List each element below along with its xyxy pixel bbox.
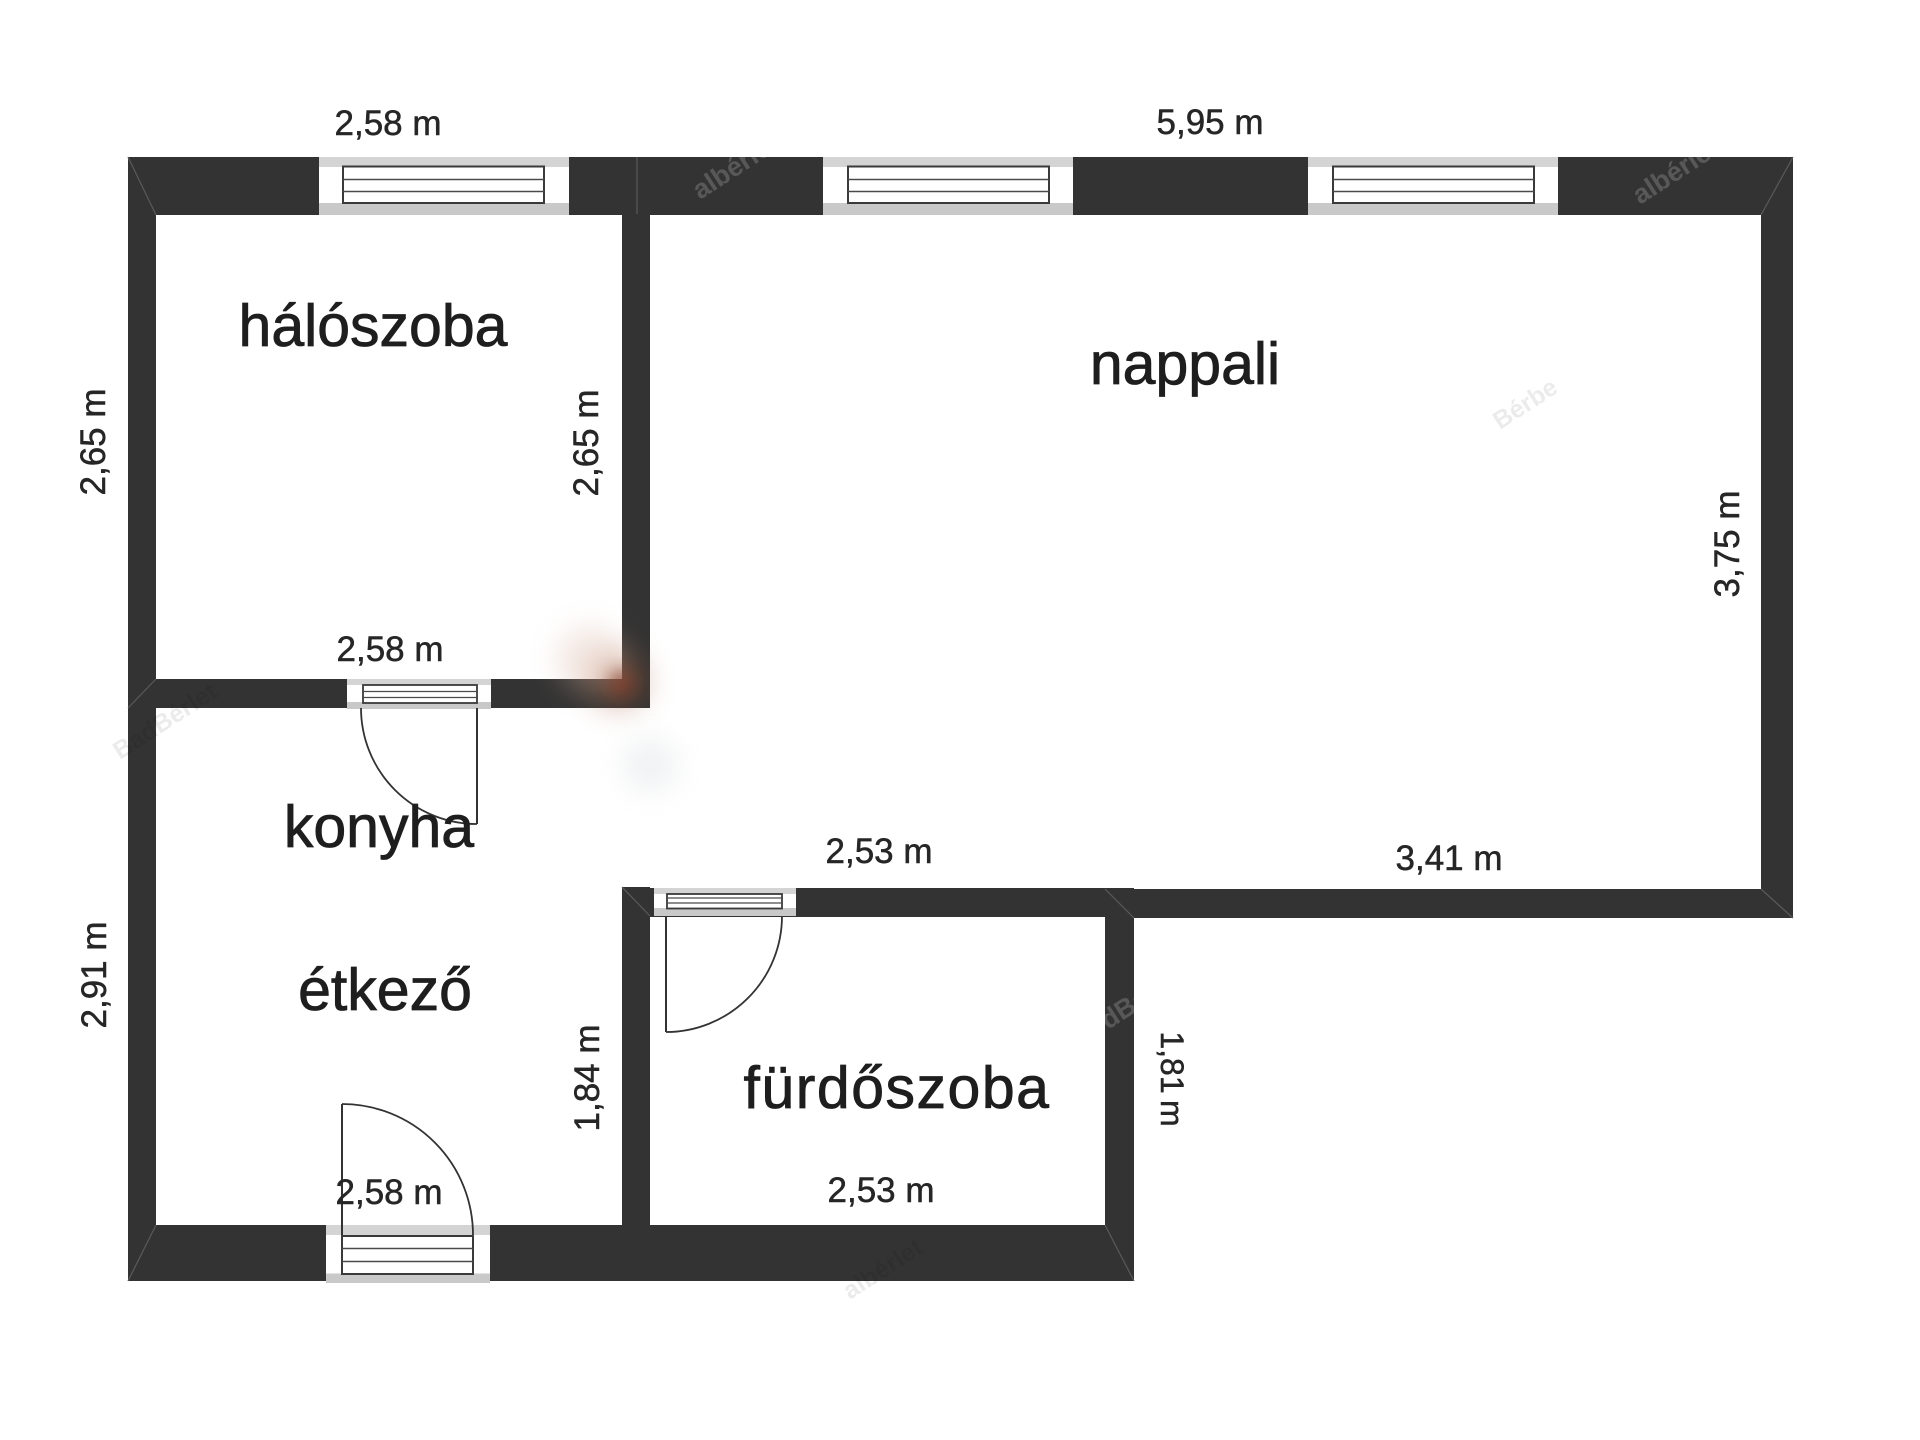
svg-text:3,41 m: 3,41 m xyxy=(1396,839,1503,878)
svg-text:2,65 m: 2,65 m xyxy=(567,390,606,497)
svg-text:1,84 m: 1,84 m xyxy=(568,1025,607,1132)
svg-text:2,58 m: 2,58 m xyxy=(336,1173,443,1212)
svg-text:konyha: konyha xyxy=(284,794,474,860)
svg-text:1,81 m: 1,81 m xyxy=(1154,1031,1190,1126)
svg-text:fürdőszoba: fürdőszoba xyxy=(744,1055,1051,1121)
svg-text:nappali: nappali xyxy=(1090,331,1280,397)
svg-text:étkező: étkező xyxy=(298,957,472,1023)
svg-text:hálószoba: hálószoba xyxy=(239,293,508,359)
svg-text:2,91 m: 2,91 m xyxy=(75,922,114,1029)
svg-text:3,75 m: 3,75 m xyxy=(1708,491,1747,598)
svg-text:2,58 m: 2,58 m xyxy=(337,630,444,669)
svg-text:2,58 m: 2,58 m xyxy=(335,104,442,143)
svg-text:2,53 m: 2,53 m xyxy=(828,1171,935,1210)
svg-text:2,53 m: 2,53 m xyxy=(826,832,933,871)
svg-text:2,65 m: 2,65 m xyxy=(74,389,113,496)
svg-text:5,95 m: 5,95 m xyxy=(1157,103,1264,142)
